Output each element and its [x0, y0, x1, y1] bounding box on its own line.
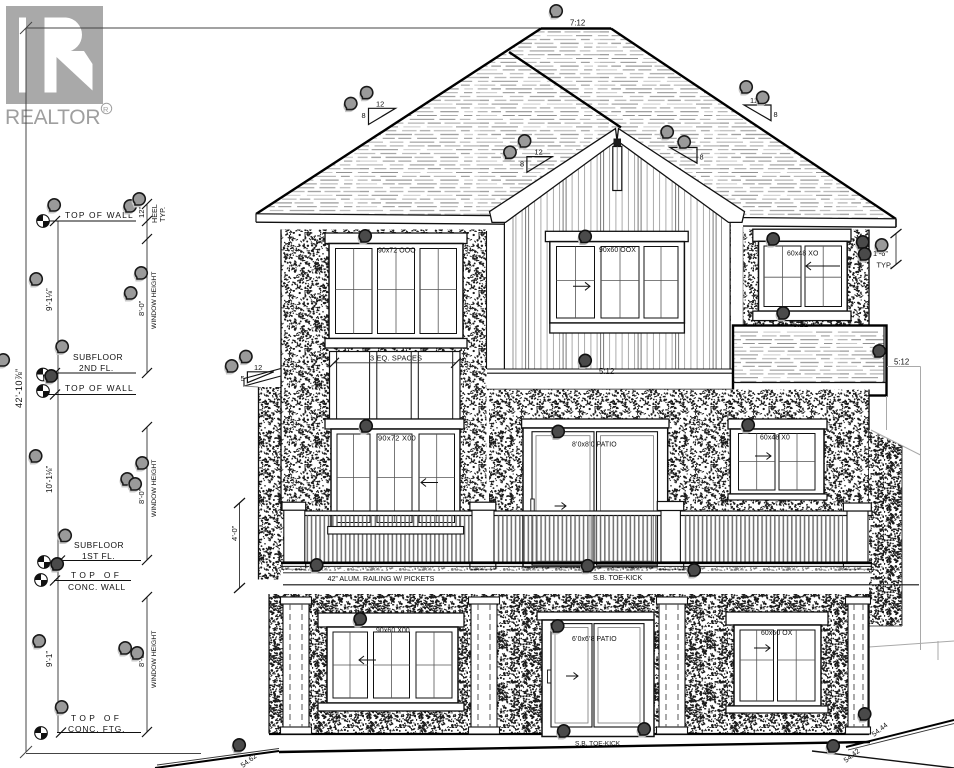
svg-text:12: 12: [376, 99, 384, 108]
svg-text:TOP OF WALL: TOP OF WALL: [65, 383, 134, 393]
svg-text:5:12: 5:12: [793, 320, 808, 329]
svg-text:8: 8: [700, 153, 704, 162]
svg-text:TOP OF: TOP OF: [71, 713, 122, 723]
svg-text:S.B. TOE-KICK: S.B. TOE-KICK: [593, 573, 642, 582]
svg-text:8’0x8’0 PATIO: 8’0x8’0 PATIO: [572, 442, 617, 449]
svg-text:60x60 OX: 60x60 OX: [761, 630, 793, 637]
svg-text:R: R: [103, 105, 109, 114]
svg-text:4’-0”: 4’-0”: [230, 525, 239, 541]
svg-text:WINDOW HEIGHT: WINDOW HEIGHT: [151, 631, 158, 688]
svg-text:12”: 12”: [137, 207, 146, 218]
svg-text:6’0x6’8 PATIO: 6’0x6’8 PATIO: [572, 636, 617, 643]
svg-text:CONC. WALL: CONC. WALL: [68, 582, 126, 592]
svg-text:3 EQ. SPACES: 3 EQ. SPACES: [370, 354, 422, 363]
svg-text:2ND FL.: 2ND FL.: [79, 363, 114, 373]
svg-text:WINDOW HEIGHT: WINDOW HEIGHT: [151, 460, 158, 517]
svg-text:60x48 X0: 60x48 X0: [760, 435, 790, 442]
svg-text:90x60 OOX: 90x60 OOX: [599, 247, 636, 254]
svg-text:90x72 OOO: 90x72 OOO: [378, 248, 416, 255]
svg-text:8: 8: [774, 110, 778, 119]
svg-text:60x48 XO: 60x48 XO: [787, 251, 819, 258]
svg-text:SUBFLOOR: SUBFLOOR: [74, 540, 124, 550]
svg-text:42” ALUM. RAILING W/ PICKETS: 42” ALUM. RAILING W/ PICKETS: [328, 575, 435, 583]
svg-text:TOP OF: TOP OF: [71, 570, 122, 580]
svg-text:8: 8: [362, 111, 366, 120]
svg-text:90x72 X00: 90x72 X00: [378, 434, 416, 443]
svg-text:5:12: 5:12: [599, 367, 614, 376]
svg-text:8: 8: [520, 159, 524, 168]
svg-text:9’-1⅛”: 9’-1⅛”: [45, 288, 54, 311]
svg-text:TYP.: TYP.: [158, 207, 167, 222]
svg-text:5: 5: [241, 374, 245, 383]
svg-text:90x60 X00: 90x60 X00: [376, 628, 410, 635]
svg-text:7:12: 7:12: [570, 19, 585, 28]
svg-text:8’-0”: 8’-0”: [137, 488, 146, 504]
svg-text:12: 12: [535, 148, 543, 157]
svg-text:10’-1⅛”: 10’-1⅛”: [45, 466, 54, 493]
svg-text:9’-1”: 9’-1”: [45, 651, 54, 667]
svg-text:12: 12: [254, 363, 262, 372]
svg-text:TYP.: TYP.: [877, 261, 892, 270]
svg-text:8’-0”: 8’-0”: [137, 300, 146, 316]
svg-text:WINDOW HEIGHT: WINDOW HEIGHT: [151, 272, 158, 329]
svg-text:1ST FL.: 1ST FL.: [82, 551, 115, 561]
svg-text:42’-10⅞”: 42’-10⅞”: [14, 369, 24, 408]
svg-text:REALTOR: REALTOR: [5, 106, 102, 129]
svg-text:5:12: 5:12: [894, 358, 909, 367]
svg-text:SUBFLOOR: SUBFLOOR: [73, 352, 123, 362]
